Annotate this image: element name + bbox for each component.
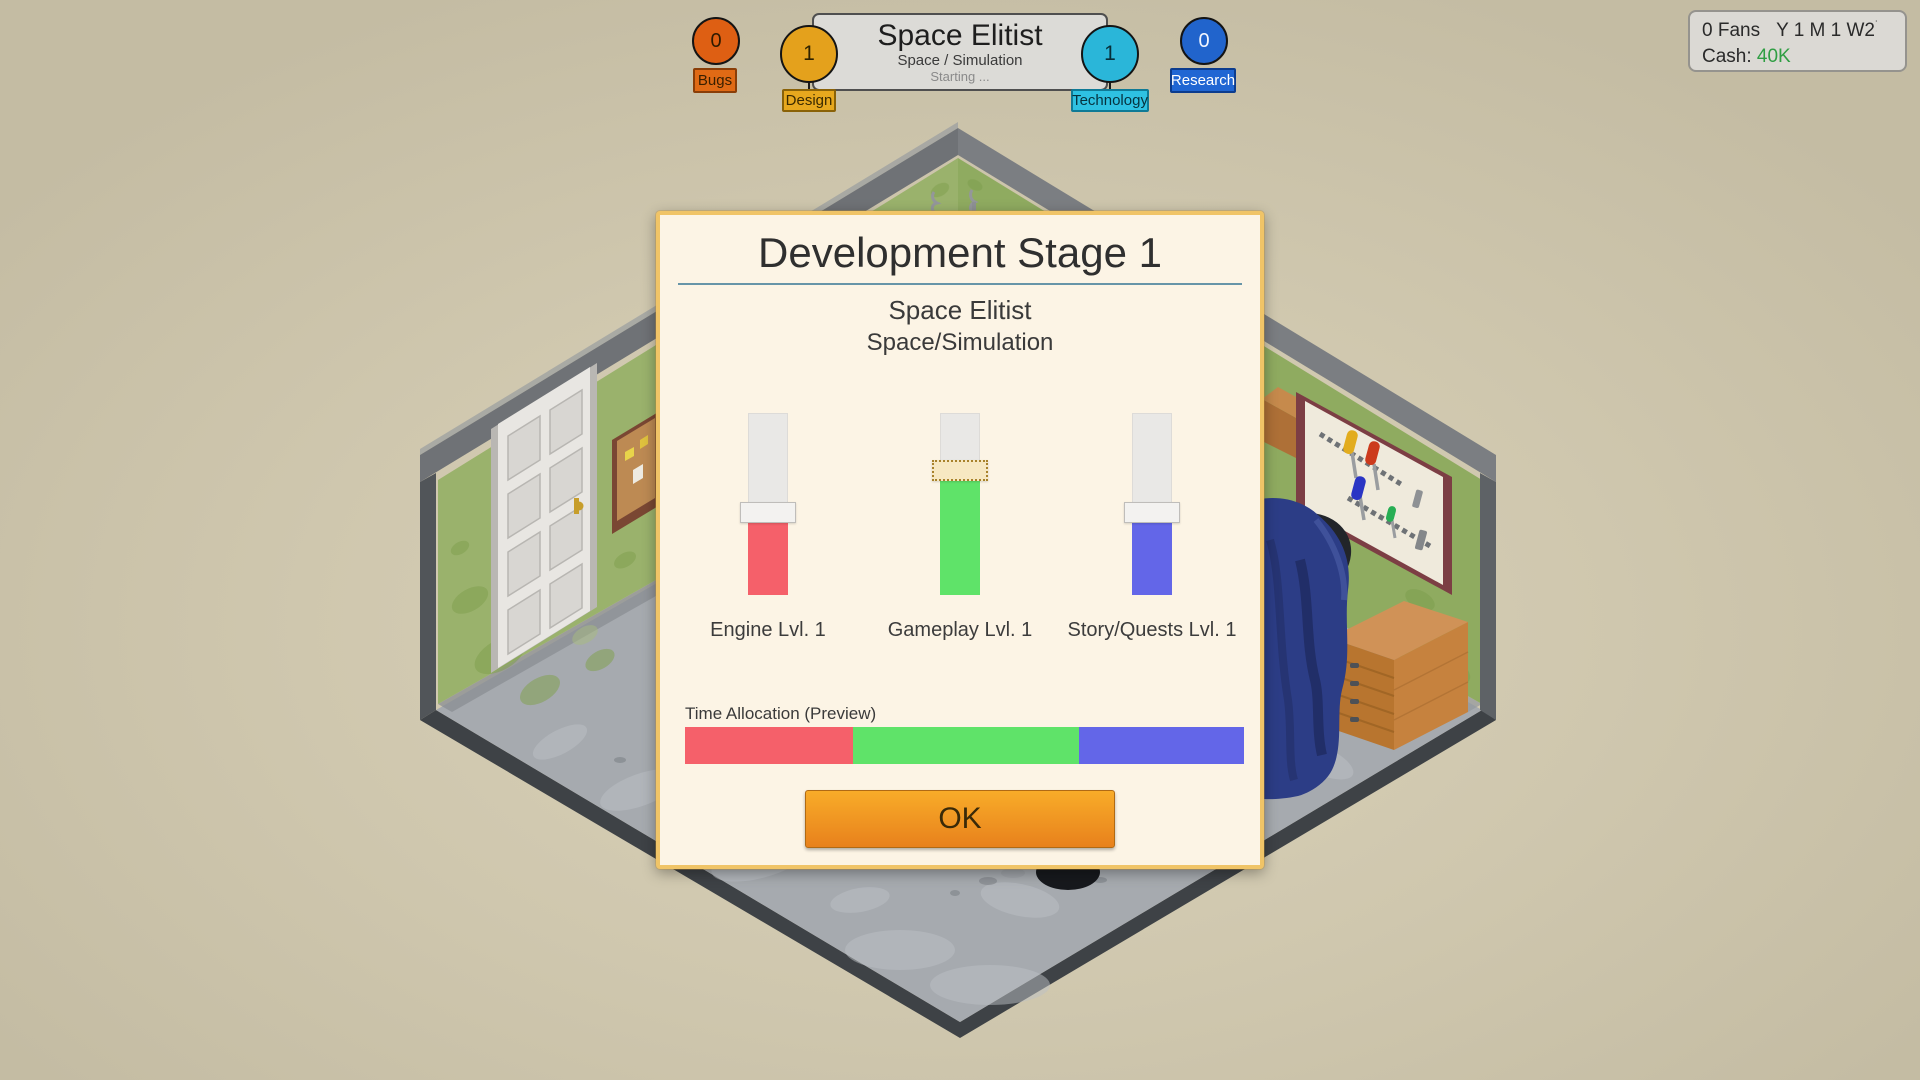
technology-circle: 1 (1081, 25, 1139, 83)
ok-button[interactable]: OK (805, 790, 1115, 848)
engine-slider-track[interactable] (748, 413, 788, 510)
story-quests-slider-fill (1132, 519, 1172, 595)
story-quests-slider[interactable] (1122, 413, 1182, 595)
game-genre: Space / Simulation (897, 53, 1022, 69)
engine-slider-handle[interactable] (740, 502, 796, 523)
engine-slider[interactable] (738, 413, 798, 595)
research-badge: Research (1170, 68, 1236, 93)
hud-stats-box: 0 Fans Y 1 M 1 W2˙ Cash: 40K (1688, 10, 1907, 72)
dialog-title: Development Stage 1 (660, 229, 1260, 277)
bugs-badge: Bugs (693, 68, 737, 93)
gameplay-slider-fill (940, 477, 980, 595)
time-segment-story (1079, 727, 1244, 764)
engine-slider-label: Engine Lvl. 1 (710, 619, 826, 642)
story-quests-slider-label: Story/Quests Lvl. 1 (1068, 619, 1237, 642)
dev-sliders: Engine Lvl. 1 Gameplay Lvl. 1 Story/Ques… (660, 413, 1260, 642)
dialog-game-genre: Space/Simulation (660, 329, 1260, 357)
game-info-panel: Space Elitist Space / Simulation Startin… (812, 13, 1108, 91)
technology-badge: Technology (1071, 89, 1149, 112)
bugs-circle: 0 (692, 17, 740, 65)
time-allocation-label: Time Allocation (Preview) (685, 704, 1235, 724)
fans-count: 0 Fans (1702, 18, 1760, 44)
cash-label: Cash: (1702, 46, 1752, 67)
time-allocation-bar (685, 727, 1244, 764)
gameplay-slider-handle[interactable] (932, 460, 988, 481)
story-slider-column: Story/Quests Lvl. 1 (1056, 413, 1248, 642)
research-circle: 0 (1180, 17, 1228, 65)
gameplay-slider[interactable] (930, 413, 990, 595)
game-screen: Space Elitist Space / Simulation Startin… (0, 0, 1920, 1080)
story-quests-slider-track[interactable] (1132, 413, 1172, 510)
game-title: Space Elitist (877, 20, 1042, 52)
title-divider (678, 283, 1242, 285)
gameplay-slider-column: Gameplay Lvl. 1 (864, 413, 1056, 642)
time-segment-engine (685, 727, 853, 764)
gameplay-slider-label: Gameplay Lvl. 1 (888, 619, 1033, 642)
development-stage-dialog: Development Stage 1 Space Elitist Space/… (656, 211, 1264, 869)
game-status: Starting ... (930, 70, 989, 84)
design-circle: 1 (780, 25, 838, 83)
dialog-game-title: Space Elitist (660, 295, 1260, 326)
story-quests-slider-handle[interactable] (1124, 502, 1180, 523)
engine-slider-column: Engine Lvl. 1 (672, 413, 864, 642)
design-badge: Design (782, 89, 836, 112)
cash-value: 40K (1757, 46, 1791, 67)
time-segment-gameplay (853, 727, 1079, 764)
engine-slider-fill (748, 519, 788, 595)
game-date: Y 1 M 1 W2˙ (1776, 18, 1879, 44)
time-allocation: Time Allocation (Preview) (660, 704, 1260, 764)
